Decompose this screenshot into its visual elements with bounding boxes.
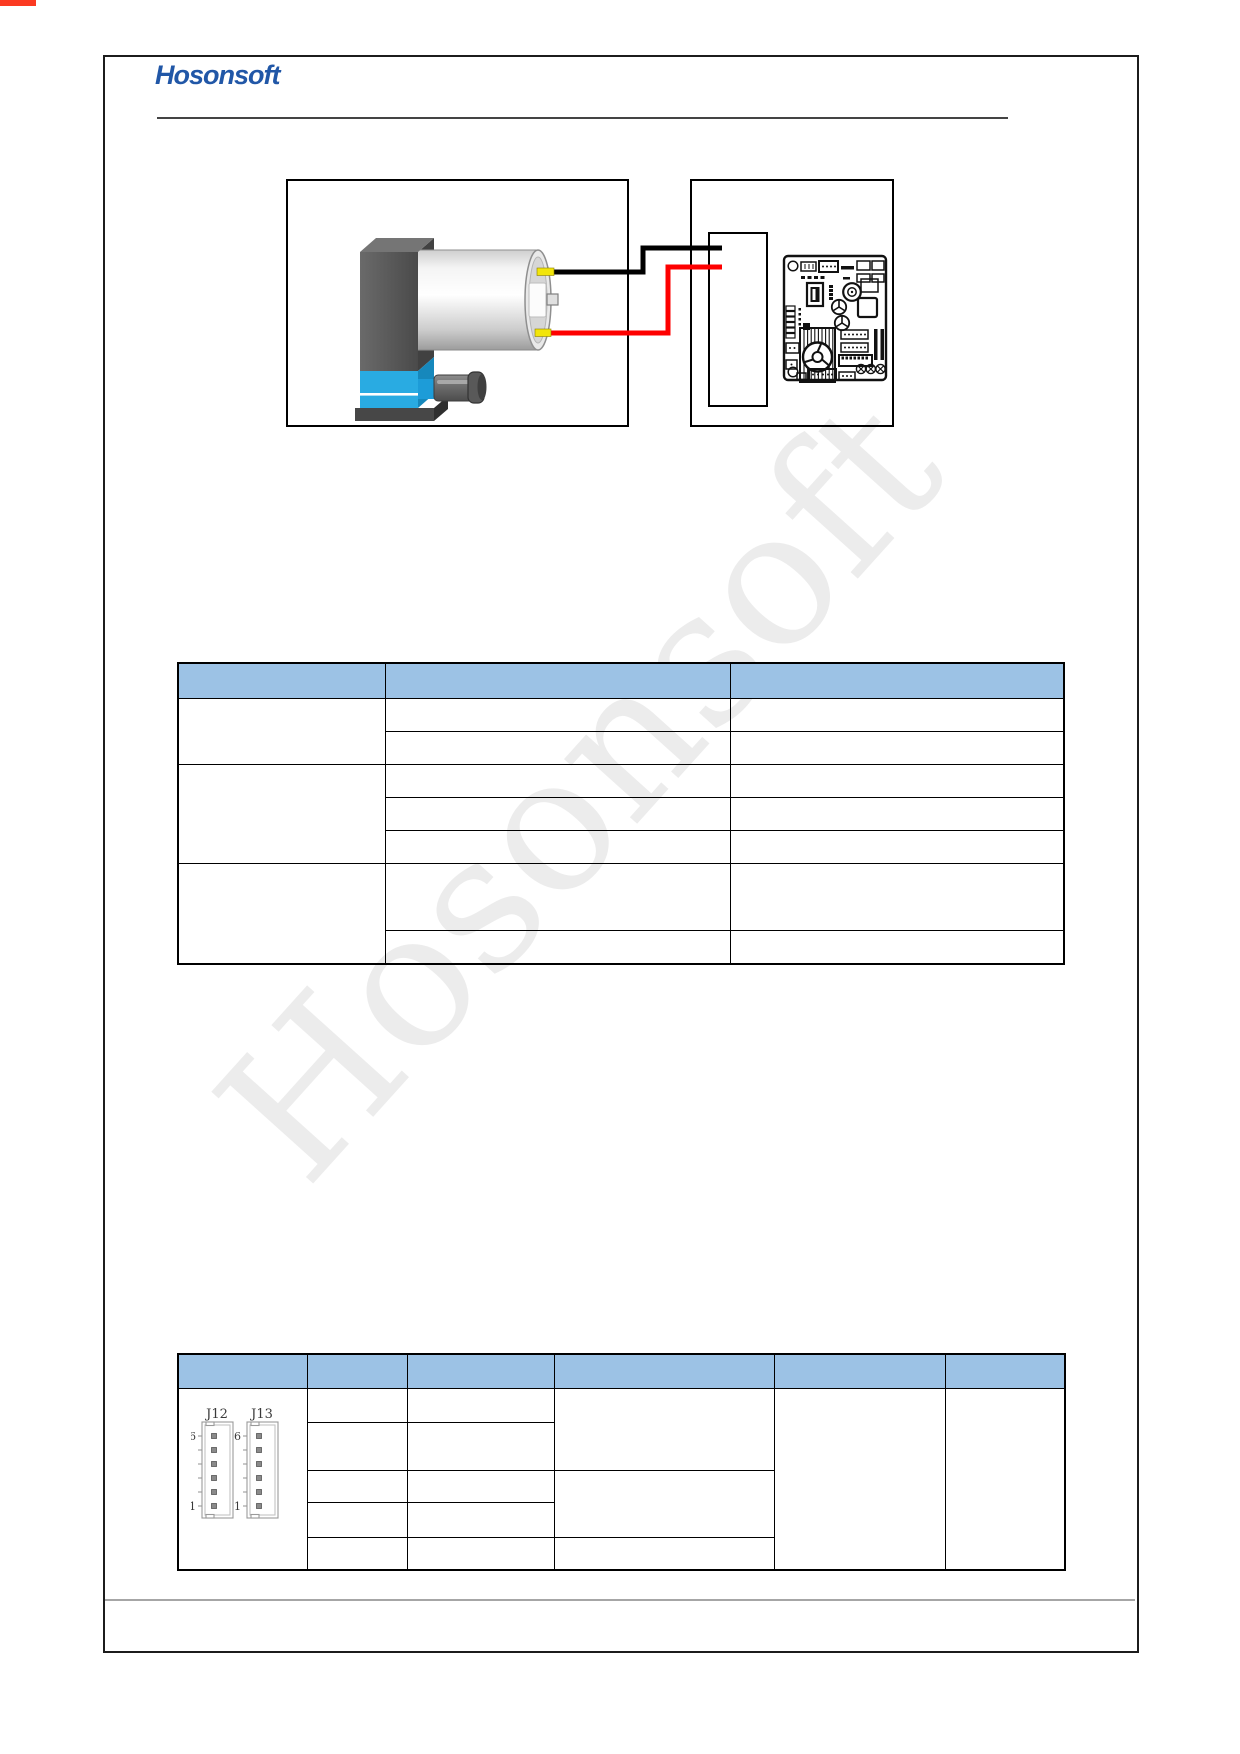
table-cell bbox=[554, 1537, 774, 1570]
table-cell bbox=[407, 1422, 554, 1470]
header-cell bbox=[178, 1354, 307, 1388]
table-cell bbox=[407, 1388, 554, 1422]
header-cell bbox=[730, 663, 1064, 698]
header-cell bbox=[774, 1354, 945, 1388]
connector-diagram-cell: J12 6 1 J13 bbox=[178, 1388, 307, 1570]
header-cell bbox=[385, 663, 730, 698]
table-cell bbox=[407, 1502, 554, 1537]
header-cell bbox=[178, 663, 385, 698]
pin-number: 1 bbox=[234, 1500, 241, 1513]
red-corner-mark bbox=[0, 0, 36, 6]
header-cell bbox=[307, 1354, 407, 1388]
table-cell bbox=[730, 863, 1064, 930]
table-cell bbox=[730, 698, 1064, 731]
header-cell bbox=[554, 1354, 774, 1388]
table-cell bbox=[385, 731, 730, 764]
table-cell bbox=[385, 797, 730, 830]
table-cell bbox=[307, 1502, 407, 1537]
table-cell bbox=[307, 1537, 407, 1570]
pin-number: 6 bbox=[191, 1430, 196, 1443]
table-header-row bbox=[178, 663, 1064, 698]
table-cell bbox=[407, 1470, 554, 1502]
table-cell bbox=[385, 830, 730, 863]
connector-pinout-diagram: J12 6 1 J13 bbox=[191, 1401, 291, 1526]
table-cell bbox=[178, 764, 385, 863]
table-cell bbox=[385, 698, 730, 731]
table-row bbox=[178, 863, 1064, 930]
table-cell bbox=[554, 1470, 774, 1537]
table-cell bbox=[945, 1388, 1065, 1570]
connector-pins bbox=[257, 1433, 262, 1508]
connector-pins bbox=[212, 1433, 217, 1508]
table-cell bbox=[407, 1537, 554, 1570]
table-cell bbox=[307, 1388, 407, 1422]
footer-divider bbox=[105, 1599, 1135, 1601]
table-cell bbox=[554, 1388, 774, 1470]
table-cell bbox=[307, 1422, 407, 1470]
table-cell bbox=[730, 797, 1064, 830]
brand-logo: Hosonsoft bbox=[155, 60, 279, 91]
header-cell bbox=[407, 1354, 554, 1388]
table-cell bbox=[730, 930, 1064, 964]
table-row: J12 6 1 J13 bbox=[178, 1388, 1065, 1422]
table-cell bbox=[730, 764, 1064, 797]
table-cell bbox=[178, 698, 385, 764]
connector-area-outline bbox=[708, 232, 768, 407]
pin-number: 6 bbox=[234, 1430, 241, 1443]
connector-label: J13 bbox=[249, 1407, 273, 1422]
pump-figure-box bbox=[286, 179, 629, 427]
table-cell bbox=[385, 930, 730, 964]
table-row bbox=[178, 698, 1064, 731]
table-cell bbox=[307, 1470, 407, 1502]
upper-empty-table bbox=[177, 662, 1065, 965]
table-cell bbox=[730, 731, 1064, 764]
lower-connector-table: J12 6 1 J13 bbox=[177, 1353, 1066, 1571]
table-cell bbox=[178, 863, 385, 964]
pin-number: 1 bbox=[191, 1500, 196, 1513]
table-cell bbox=[774, 1388, 945, 1570]
header-cell bbox=[945, 1354, 1065, 1388]
table-cell bbox=[730, 830, 1064, 863]
table-cell bbox=[385, 764, 730, 797]
table-header-row bbox=[178, 1354, 1065, 1388]
table-row bbox=[178, 764, 1064, 797]
table-cell bbox=[385, 863, 730, 930]
header-divider bbox=[157, 117, 1008, 119]
connector-label: J12 bbox=[204, 1407, 228, 1422]
